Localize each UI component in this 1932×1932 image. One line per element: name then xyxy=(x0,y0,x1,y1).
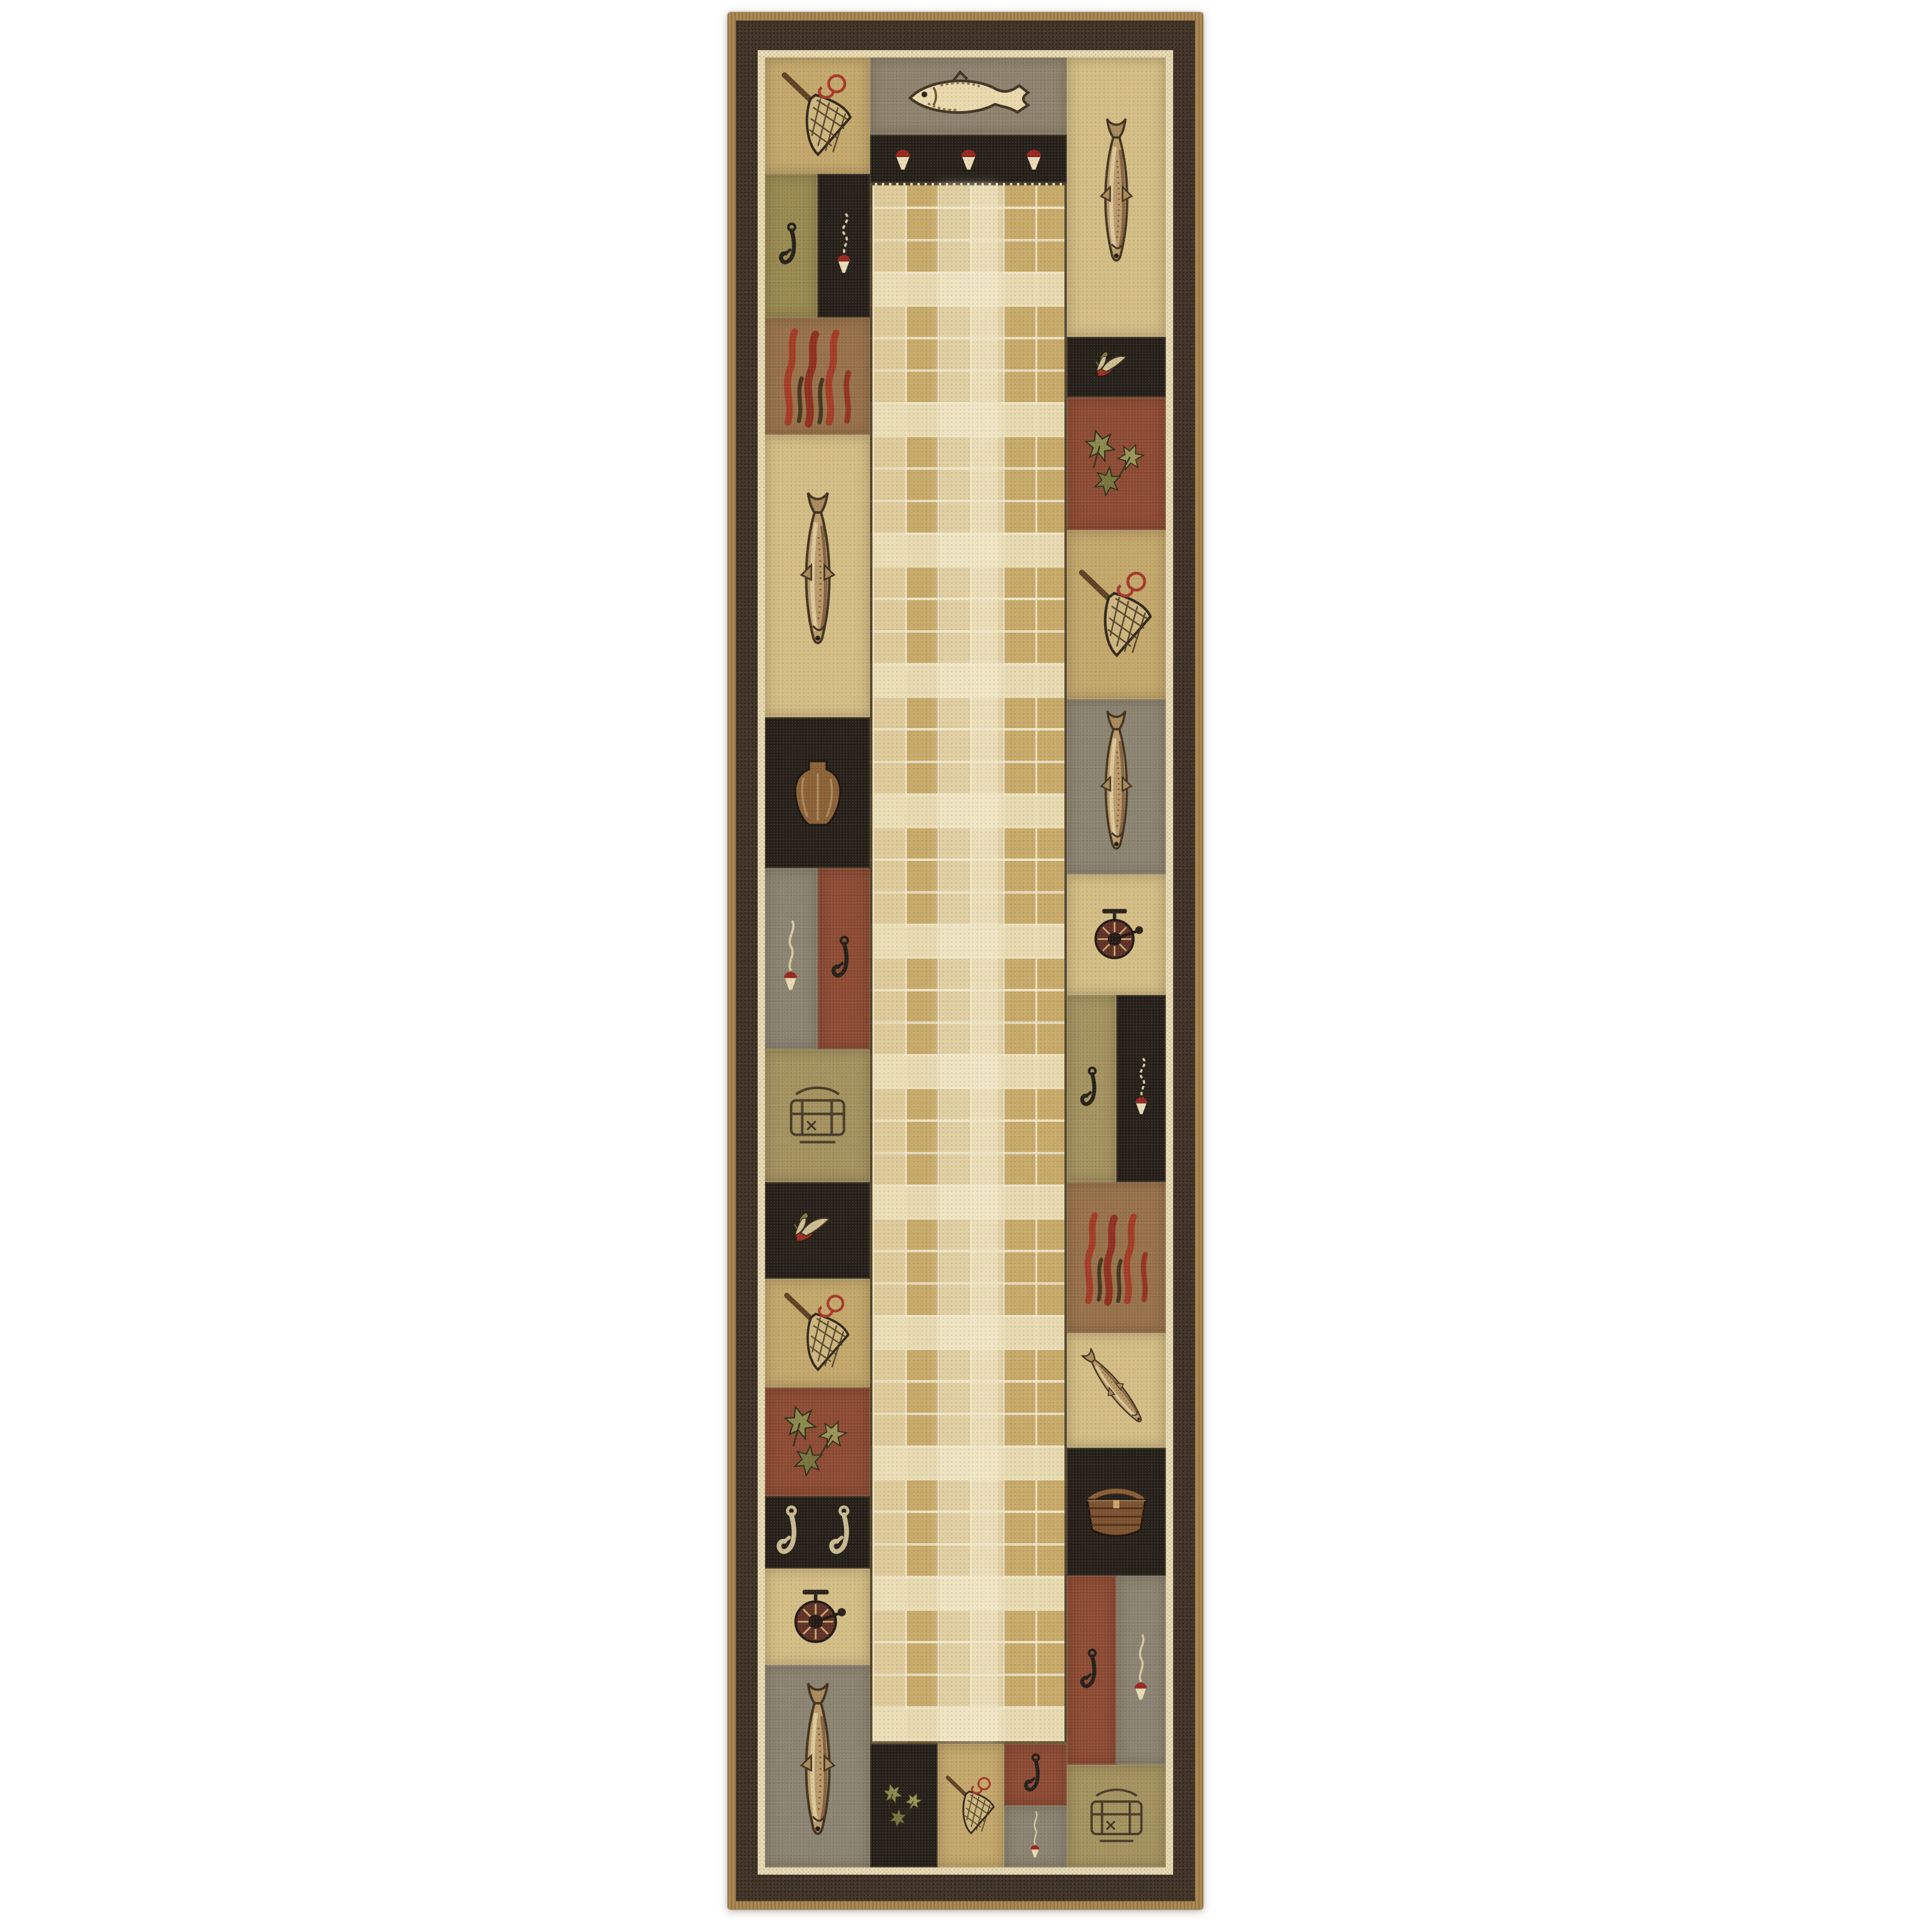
rug-panel-fish-diag xyxy=(1067,1333,1166,1448)
rug-panel-sketch xyxy=(765,1049,870,1182)
rug-panel-fish-v xyxy=(765,435,870,717)
fish-h-icon xyxy=(895,68,1041,125)
rug-panel-net xyxy=(938,1744,1004,1867)
reel-icon xyxy=(1086,890,1147,979)
rug-panel-leaves xyxy=(765,1387,870,1496)
line-bobber-icon xyxy=(830,184,857,308)
net-icon xyxy=(773,69,862,162)
rug-panel-fish-v xyxy=(765,1665,870,1867)
bobbers3-icon xyxy=(888,144,918,174)
fish-v-icon xyxy=(792,1675,844,1858)
fish-v-icon xyxy=(792,449,844,703)
rug-panel-fish-h xyxy=(870,57,1067,135)
fish-v-icon xyxy=(1092,71,1141,323)
net-icon xyxy=(942,1756,999,1855)
rug-panel-flames xyxy=(1067,1182,1166,1333)
plaid-field xyxy=(870,183,1067,1744)
rug-panel-net xyxy=(1067,530,1166,699)
creel-icon xyxy=(1078,1468,1155,1555)
hook-icon xyxy=(1020,1752,1051,1797)
rug-panel-reel xyxy=(765,1569,870,1665)
leaves-icon xyxy=(1076,411,1156,517)
rug-panel-hook xyxy=(765,174,817,318)
fly-icon xyxy=(1080,345,1153,389)
bottom-motif-row xyxy=(870,1744,1067,1867)
sketch-icon xyxy=(778,1063,857,1169)
rug-photo xyxy=(728,12,1203,1910)
rug-panel-group xyxy=(1067,1576,1166,1765)
rug-panel-smoke xyxy=(1004,1806,1067,1868)
leaves-icon xyxy=(877,1756,931,1855)
right-motif-column xyxy=(1067,57,1166,1867)
flames-icon xyxy=(773,325,862,428)
rug-panel-reel xyxy=(1067,874,1166,995)
rug-panel-hook xyxy=(1067,1576,1116,1765)
bobbers3-icon-group xyxy=(870,135,1067,183)
rug-panel-smoke xyxy=(1116,1576,1166,1765)
bobbers3-icon xyxy=(1019,144,1049,174)
rug-panel-fly xyxy=(765,1182,870,1279)
line-bobber-icon xyxy=(1128,1008,1154,1169)
rug-panel-hook xyxy=(1004,1744,1067,1806)
rug-panel-fish-v xyxy=(1067,57,1166,337)
rug-border xyxy=(736,21,1195,1901)
smoke-icon xyxy=(1022,1810,1049,1863)
rug-inner-line xyxy=(758,50,1173,1875)
rug-panel-line-bobber xyxy=(817,174,870,318)
net-icon xyxy=(1074,547,1158,682)
hook-icon xyxy=(1080,1602,1104,1738)
smoke-icon xyxy=(780,881,802,1037)
hooks2-icon-group xyxy=(765,1496,870,1569)
rug-panel-bobbers3 xyxy=(870,135,1067,183)
rug-panel-net xyxy=(765,57,870,174)
hooks2-icon xyxy=(828,1504,859,1561)
leaves-icon xyxy=(775,1398,859,1485)
hooks2-icon xyxy=(775,1504,807,1561)
jug-icon xyxy=(787,746,848,840)
hook-icon xyxy=(778,194,805,297)
rug-panel-jug xyxy=(765,717,870,868)
rug-panel-hook xyxy=(817,868,870,1049)
rug-panel-fly xyxy=(1067,337,1166,397)
rug-panel-flames xyxy=(765,318,870,435)
rug-content xyxy=(765,57,1166,1867)
rug-panel-smoke xyxy=(765,868,817,1049)
plaid-center-light-band xyxy=(940,185,998,1741)
hook-icon xyxy=(1080,1021,1104,1156)
center-column xyxy=(870,57,1067,1867)
rug-panel-sketch xyxy=(1067,1765,1166,1867)
rug-panel-leaves xyxy=(870,1744,938,1867)
rug-panel-leaves xyxy=(1067,397,1166,530)
flames-icon xyxy=(1074,1191,1158,1324)
rug-panel-group xyxy=(1004,1744,1067,1867)
rug-panel-line-bobber xyxy=(1116,995,1166,1182)
fish-diag-icon xyxy=(1067,1335,1166,1446)
net-icon xyxy=(773,1290,862,1377)
rug-panel-hook xyxy=(1067,995,1116,1182)
sketch-icon xyxy=(1079,1775,1154,1857)
rug-panel-group xyxy=(1067,995,1166,1182)
hook-icon xyxy=(831,894,857,1024)
left-motif-column xyxy=(765,57,870,1867)
photo-canvas xyxy=(0,0,1932,1932)
rug-binding xyxy=(728,12,1203,1910)
rug-panel-fish-v xyxy=(1067,699,1166,874)
rug-panel-net xyxy=(765,1279,870,1387)
rug-panel-group xyxy=(765,868,870,1049)
rug-panel-group xyxy=(765,174,870,318)
rug-panel-creel xyxy=(1067,1448,1166,1576)
rug-panel-hooks2 xyxy=(765,1496,870,1569)
reel-icon xyxy=(785,1581,850,1652)
smoke-icon xyxy=(1131,1589,1151,1751)
bobbers3-icon xyxy=(954,144,984,174)
fly-icon xyxy=(779,1195,857,1266)
fish-v-icon xyxy=(1092,708,1141,866)
